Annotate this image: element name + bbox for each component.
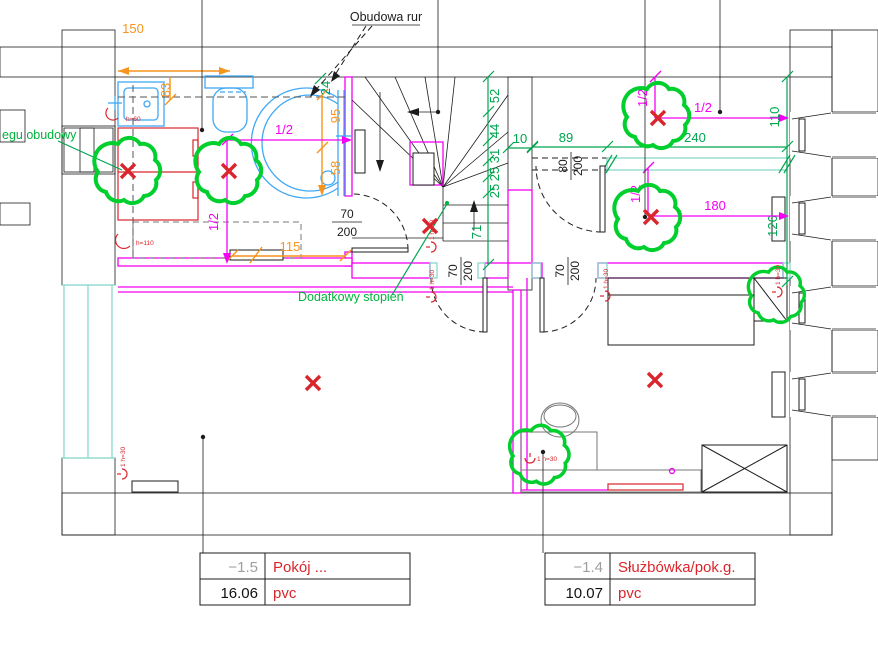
- door70-h3: 200: [568, 261, 582, 281]
- room-left-name: Pokój ...: [273, 559, 327, 576]
- doors: [352, 166, 605, 332]
- dim-95: 95: [328, 109, 343, 123]
- dim-52: 52: [487, 89, 502, 103]
- room-right-level: −1.4: [573, 559, 603, 576]
- dim-half-tr-h: 1/2: [694, 100, 712, 115]
- window-sill-board-4: [772, 372, 785, 417]
- dim-half-bath-v: 1/2: [206, 213, 221, 231]
- callout-extra-step: Dodatkowy stopień: [298, 290, 404, 304]
- dim-25a: 25: [487, 167, 502, 181]
- washbasin-height-label: h=60: [126, 116, 141, 123]
- toilet: [205, 76, 253, 132]
- dim-126: 126: [765, 215, 780, 237]
- window-right-4: [790, 372, 878, 417]
- room-left-area: 16.06: [220, 585, 258, 602]
- furniture: [132, 278, 787, 492]
- door70-h2: 200: [461, 261, 475, 281]
- dim-89: 89: [559, 130, 573, 145]
- door-bathroom: [352, 194, 408, 252]
- door80-w: 80: [556, 159, 570, 173]
- dim-10: 10: [513, 131, 527, 146]
- radiator-left-room: [132, 481, 178, 492]
- window-right-2: [790, 196, 878, 241]
- x-mark-1: [121, 164, 135, 178]
- room-right-floor: pvc: [618, 585, 642, 602]
- exterior-walls: [0, 30, 878, 535]
- dim-71: 71: [469, 225, 484, 239]
- room-right-area: 10.07: [565, 585, 603, 602]
- x-mark-2: [222, 164, 236, 178]
- dim-24: 24: [318, 81, 333, 95]
- room-left-floor: pvc: [273, 585, 297, 602]
- dim-44: 44: [487, 124, 502, 138]
- corner-bathtub: [251, 88, 352, 198]
- callout-pipe-boxing: Obudowa rur: [350, 10, 422, 24]
- door-label-80: 80 200: [556, 152, 585, 180]
- door-label-left: 70 200: [446, 257, 475, 285]
- bed: [608, 278, 787, 345]
- x-mark-room-right: [648, 373, 662, 387]
- door-label-bathroom: 70 200: [332, 207, 362, 239]
- door70-h: 200: [337, 225, 357, 239]
- door-label-right: 70 200: [553, 257, 582, 285]
- floor-plan-drawing: 1 h=30: [0, 0, 878, 647]
- cabinet-height-label: h=110: [136, 240, 154, 247]
- dimensions-orange: 150 83 95 58 115: [118, 21, 351, 261]
- dim-150: 150: [122, 21, 144, 36]
- dim-31: 31: [487, 149, 502, 163]
- left-glazed-strip: [62, 285, 115, 458]
- dim-240: 240: [684, 130, 706, 145]
- room-right-name: Służbówka/pok.g.: [618, 559, 736, 576]
- door80-h: 200: [571, 156, 585, 176]
- dimensions-green: 89 240 110 126 52 44 31 25 25 71 10 24: [315, 71, 793, 287]
- door-room-right: [540, 278, 596, 332]
- dim-180: 180: [704, 198, 726, 213]
- dim-half-bath-h: 1/2: [275, 122, 293, 137]
- dim-half-tr-v1: 1/2: [635, 89, 650, 107]
- window-right-1: [790, 112, 878, 158]
- h30-symbol-6: [525, 453, 557, 463]
- room-left-level: −1.5: [228, 559, 258, 576]
- x-mark-room-left: [306, 376, 320, 390]
- stair-radiator: [355, 130, 365, 173]
- door70-w2: 70: [446, 264, 460, 278]
- room-table-right: −1.4 Służbówka/pok.g. 10.07 pvc: [545, 553, 755, 605]
- winder-staircase: [352, 77, 508, 241]
- radiator-red: [608, 484, 683, 490]
- room-table-left: −1.5 Pokój ... 16.06 pvc: [200, 553, 410, 605]
- dim-25b: 25: [487, 184, 502, 198]
- dim-115: 115: [280, 239, 301, 254]
- wardrobe-crossed-box: [702, 445, 787, 492]
- h30-symbol-5: [117, 447, 127, 479]
- door-room-left: [431, 278, 487, 332]
- door70-w3: 70: [553, 264, 567, 278]
- callout-boxing-edge: egu obudowy: [2, 128, 77, 142]
- riser-cloud-4: [614, 185, 680, 250]
- dim-83: 83: [158, 83, 173, 97]
- door70-w: 70: [340, 207, 354, 221]
- dim-58: 58: [328, 161, 343, 175]
